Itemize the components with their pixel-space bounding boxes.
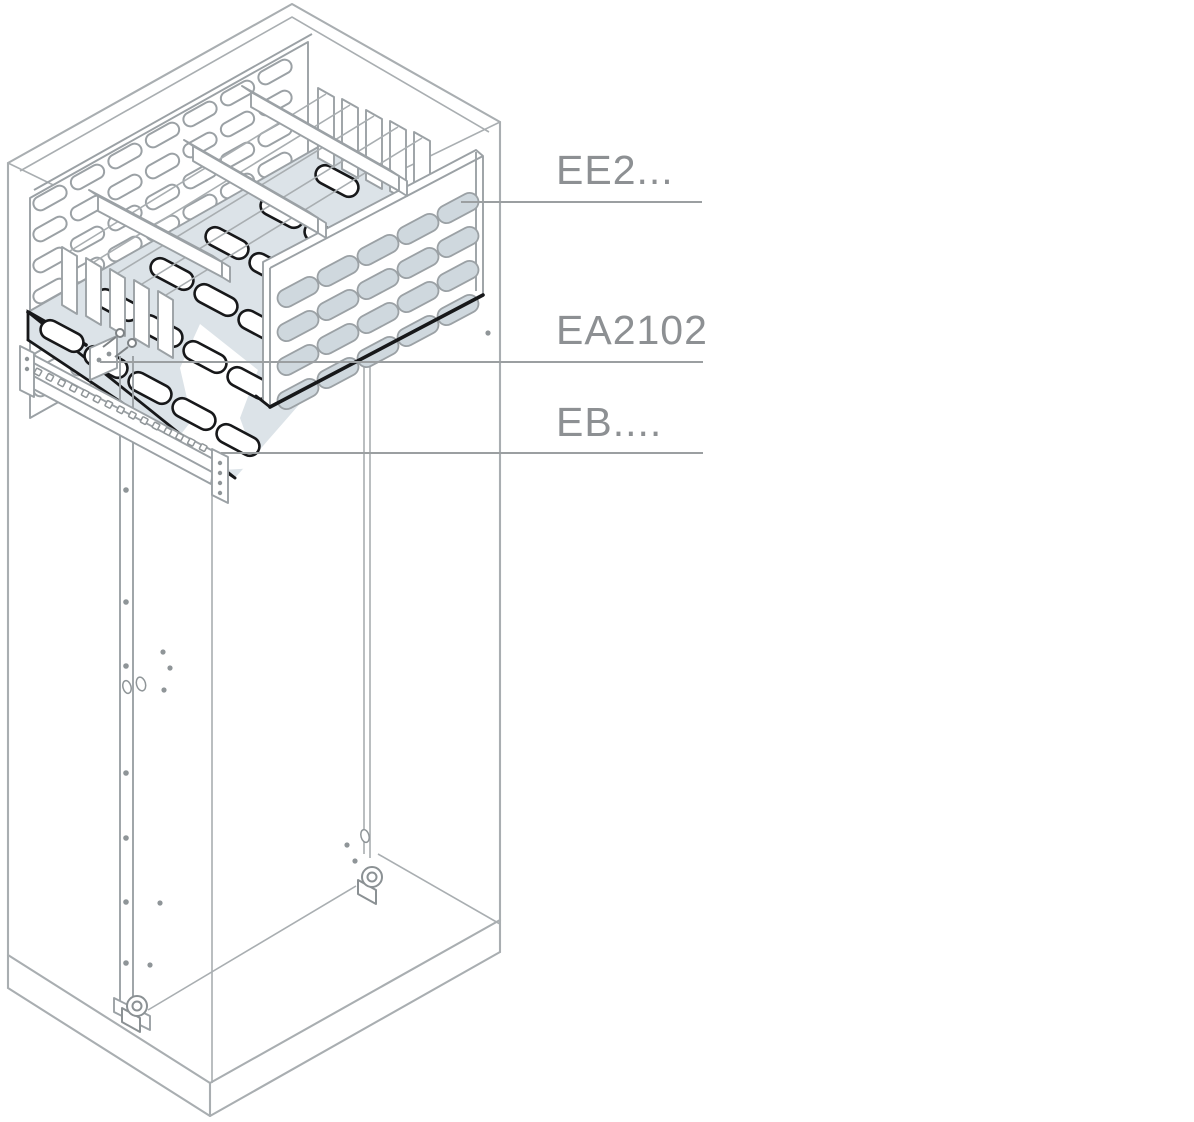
figure-canvas: EE2... EA2102 EB.... (0, 0, 1194, 1122)
upright-holes (121, 422, 147, 966)
part-label-ea2102: EA2102 (556, 310, 708, 351)
part-label-ee2: EE2... (556, 150, 674, 191)
vertical-upright (114, 356, 150, 1030)
part-label-eb: EB.... (556, 402, 662, 443)
clamp-right (358, 867, 382, 904)
